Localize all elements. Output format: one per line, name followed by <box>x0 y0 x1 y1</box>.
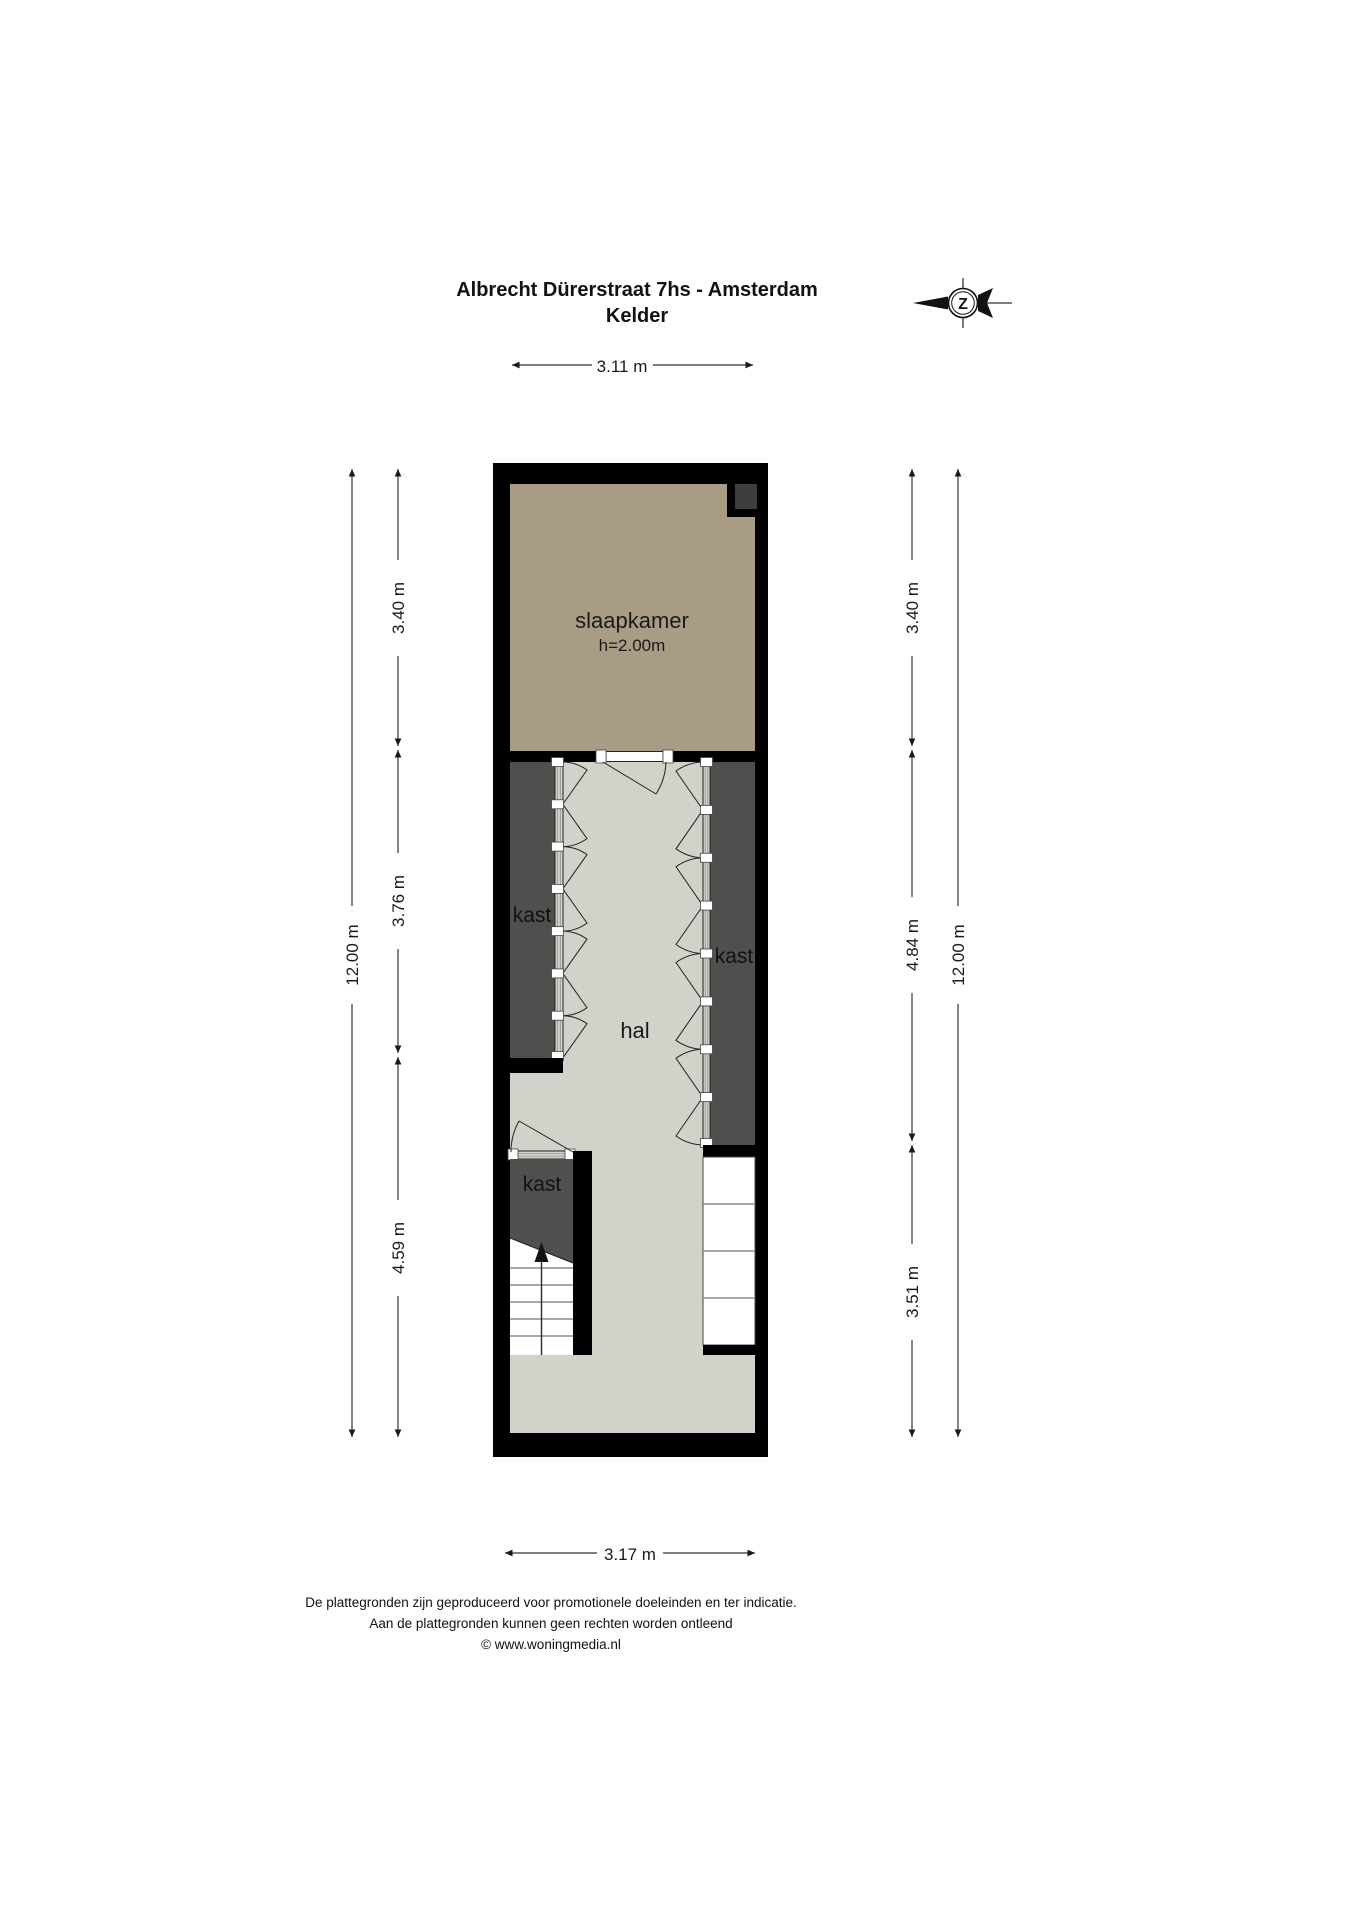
footer-line-2: Aan de plattegronden kunnen geen rechten… <box>369 1616 732 1631</box>
dimension-top: 3.11 m <box>512 357 753 376</box>
dimension-left-seg2-label: 3.76 m <box>389 875 408 927</box>
room-label-kast-left: kast <box>513 904 552 927</box>
dimension-top-label: 3.11 m <box>597 357 648 376</box>
dimension-right-seg1-label: 3.40 m <box>903 582 922 634</box>
room-label-kast-bottom: kast <box>523 1173 562 1196</box>
compass-needle-icon <box>913 297 948 310</box>
dimension-right-seg2-label: 4.84 m <box>903 919 922 971</box>
dimension-left-seg3-label: 4.59 m <box>389 1222 408 1274</box>
footer-disclaimer: De plattegronden zijn geproduceerd voor … <box>305 1595 797 1652</box>
room-label-hal: hal <box>620 1018 649 1043</box>
dimension-right-seg3-label: 3.51 m <box>903 1266 922 1318</box>
wall-closet-left-end <box>510 1058 563 1073</box>
dimension-left-seg1-label: 3.40 m <box>389 582 408 634</box>
wall-stairs-left-side <box>573 1151 592 1355</box>
dimension-left-segments: 3.40 m 3.76 m 4.59 m <box>389 469 408 1437</box>
shaft <box>735 484 757 509</box>
footer-line-3: © www.woningmedia.nl <box>481 1637 621 1652</box>
dimension-left-overall-label: 12.00 m <box>343 924 362 985</box>
dimension-bottom-label: 3.17 m <box>604 1545 656 1564</box>
dimension-bottom: 3.17 m <box>505 1545 755 1564</box>
floorplan-canvas: Albrecht Dürerstraat 7hs - Amsterdam Kel… <box>0 0 1358 1920</box>
footer-line-1: De plattegronden zijn geproduceerd voor … <box>305 1595 797 1610</box>
room-label-kast-right: kast <box>715 945 754 968</box>
title-block: Albrecht Dürerstraat 7hs - Amsterdam Kel… <box>456 279 818 327</box>
dimension-right-overall-label: 12.00 m <box>949 924 968 985</box>
dimension-left-overall: 12.00 m <box>343 469 362 1437</box>
compass: Z <box>913 278 1012 328</box>
closet-bottom-left <box>508 1121 592 1355</box>
room-label-slaapkamer-height: h=2.00m <box>599 636 666 655</box>
dimension-right-overall: 12.00 m <box>949 469 968 1437</box>
wall-stairs-right-end <box>703 1345 768 1355</box>
room-label-slaapkamer: slaapkamer <box>575 608 689 633</box>
floor-plan: slaapkamer h=2.00m kast kast hal kast <box>493 463 768 1457</box>
dimension-right-segments: 3.40 m 4.84 m 3.51 m <box>903 469 922 1437</box>
page-title: Albrecht Dürerstraat 7hs - Amsterdam <box>456 279 818 301</box>
page-subtitle: Kelder <box>606 305 668 327</box>
compass-north-label: Z <box>958 296 968 313</box>
wall-closet-right-end <box>703 1145 768 1157</box>
